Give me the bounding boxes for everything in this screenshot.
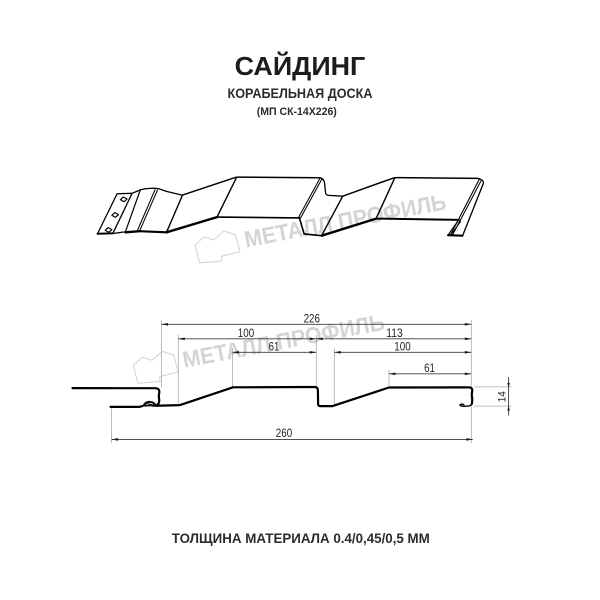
svg-text:100: 100 bbox=[238, 326, 255, 340]
svg-text:61: 61 bbox=[269, 340, 280, 354]
svg-text:113: 113 bbox=[386, 326, 403, 340]
svg-text:ТОЛЩИНА МАТЕРИАЛА 0.4/0,45/0,5: ТОЛЩИНА МАТЕРИАЛА 0.4/0,45/0,5 ММ bbox=[172, 530, 430, 546]
svg-text:226: 226 bbox=[304, 312, 321, 326]
svg-text:КОРАБЕЛЬНАЯ ДОСКА: КОРАБЕЛЬНАЯ ДОСКА bbox=[228, 86, 373, 101]
svg-text:100: 100 bbox=[394, 340, 411, 354]
svg-text:(МП СК-14Х226): (МП СК-14Х226) bbox=[257, 106, 337, 118]
svg-text:61: 61 bbox=[424, 361, 435, 375]
svg-text:14: 14 bbox=[496, 391, 508, 402]
svg-text:САЙДИНГ: САЙДИНГ bbox=[235, 51, 366, 81]
svg-text:260: 260 bbox=[276, 426, 293, 440]
